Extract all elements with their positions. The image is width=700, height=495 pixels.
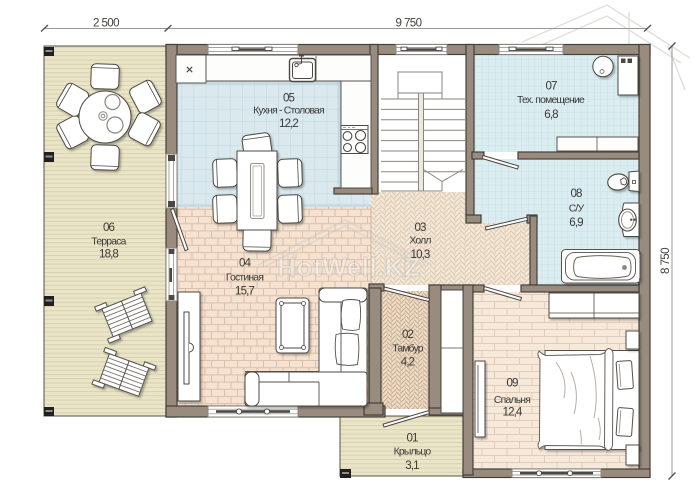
- svg-text:Терраса: Терраса: [91, 237, 126, 248]
- svg-text:12,4: 12,4: [503, 406, 523, 419]
- svg-text:Тех. помещение: Тех. помещение: [517, 95, 585, 106]
- svg-text:12,2: 12,2: [279, 117, 298, 130]
- svg-text:Спальня: Спальня: [494, 395, 530, 406]
- svg-text:3,1: 3,1: [405, 459, 419, 472]
- svg-text:9 750: 9 750: [395, 17, 421, 30]
- svg-text:HotWell.KZ: HotWell.KZ: [277, 252, 420, 282]
- svg-text:10,3: 10,3: [411, 248, 430, 261]
- svg-text:6,8: 6,8: [544, 108, 558, 121]
- svg-text:06: 06: [103, 221, 115, 234]
- svg-text:2 500: 2 500: [93, 17, 119, 30]
- svg-text:Тамбур: Тамбур: [392, 343, 423, 355]
- svg-text:03: 03: [414, 221, 426, 234]
- svg-text:15,7: 15,7: [235, 285, 254, 298]
- svg-text:04: 04: [239, 257, 252, 270]
- svg-text:09: 09: [506, 377, 518, 390]
- svg-text:С/У: С/У: [569, 204, 585, 215]
- svg-text:01: 01: [406, 432, 418, 445]
- svg-text:Крыльцо: Крыльцо: [394, 447, 432, 458]
- svg-text:4,2: 4,2: [401, 356, 415, 369]
- svg-text:Кухня - Столовая: Кухня - Столовая: [253, 106, 324, 117]
- svg-text:05: 05: [283, 92, 295, 105]
- svg-text:18,8: 18,8: [99, 248, 118, 261]
- svg-text:Холл: Холл: [409, 236, 431, 247]
- svg-text:02: 02: [402, 328, 414, 341]
- svg-text:Гостиная: Гостиная: [226, 272, 263, 283]
- svg-text:07: 07: [545, 80, 557, 93]
- svg-text:6,9: 6,9: [569, 216, 583, 229]
- svg-text:08: 08: [570, 187, 582, 200]
- svg-text:8 750: 8 750: [659, 248, 672, 274]
